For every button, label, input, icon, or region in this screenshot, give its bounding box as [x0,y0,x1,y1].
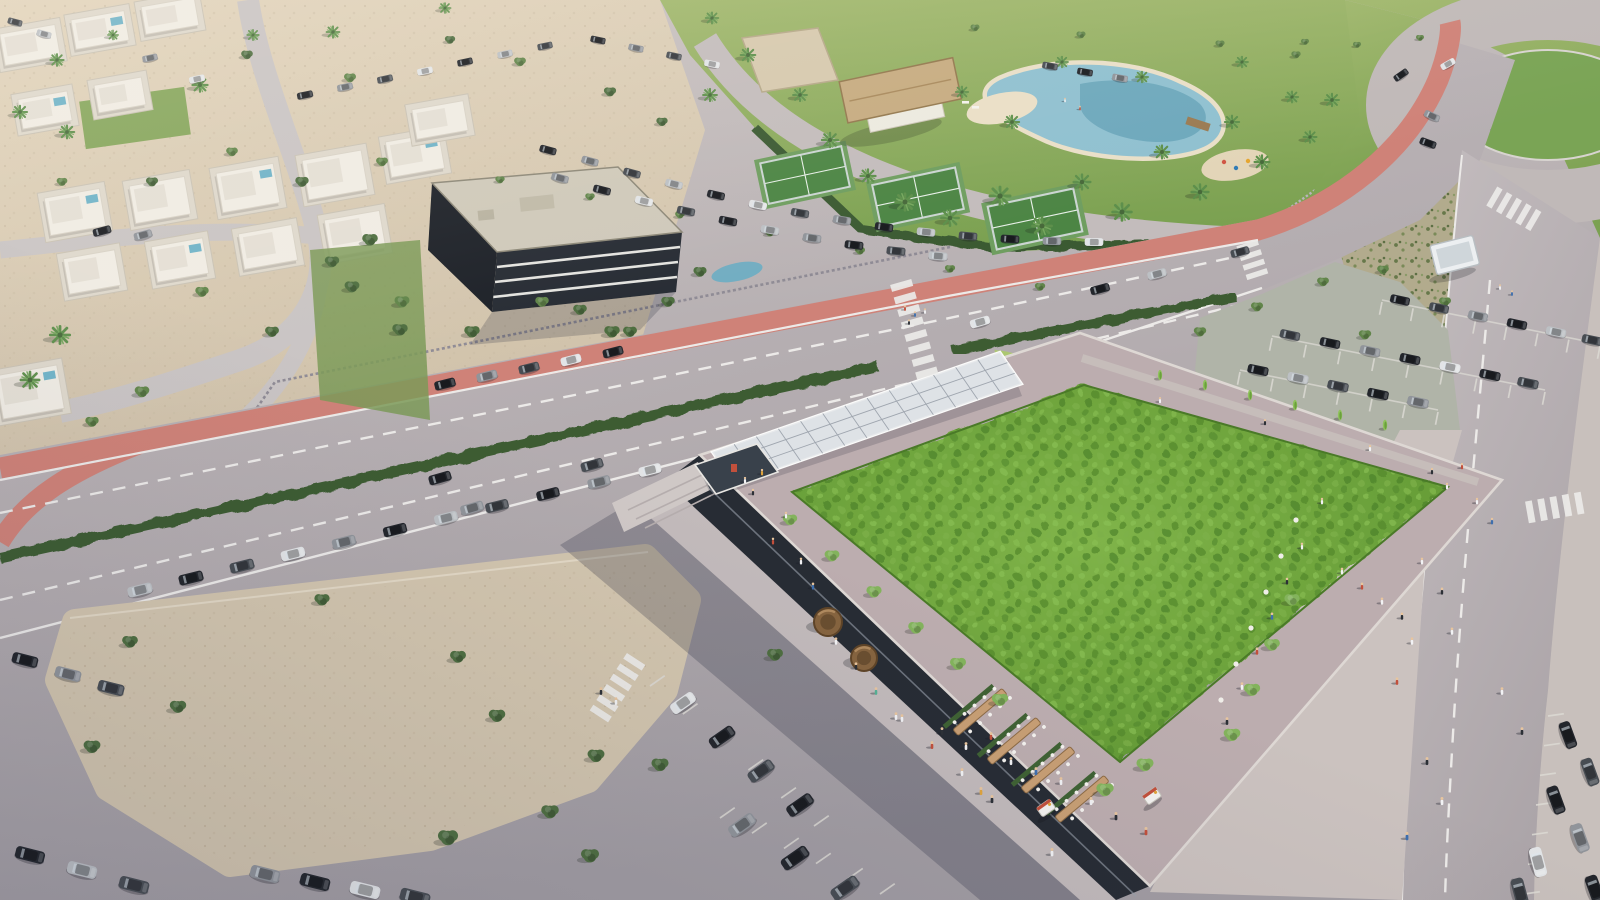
aerial-render-viewport [0,0,1600,900]
aerial-development-render [0,0,1600,900]
shadow-tint [0,0,1600,900]
